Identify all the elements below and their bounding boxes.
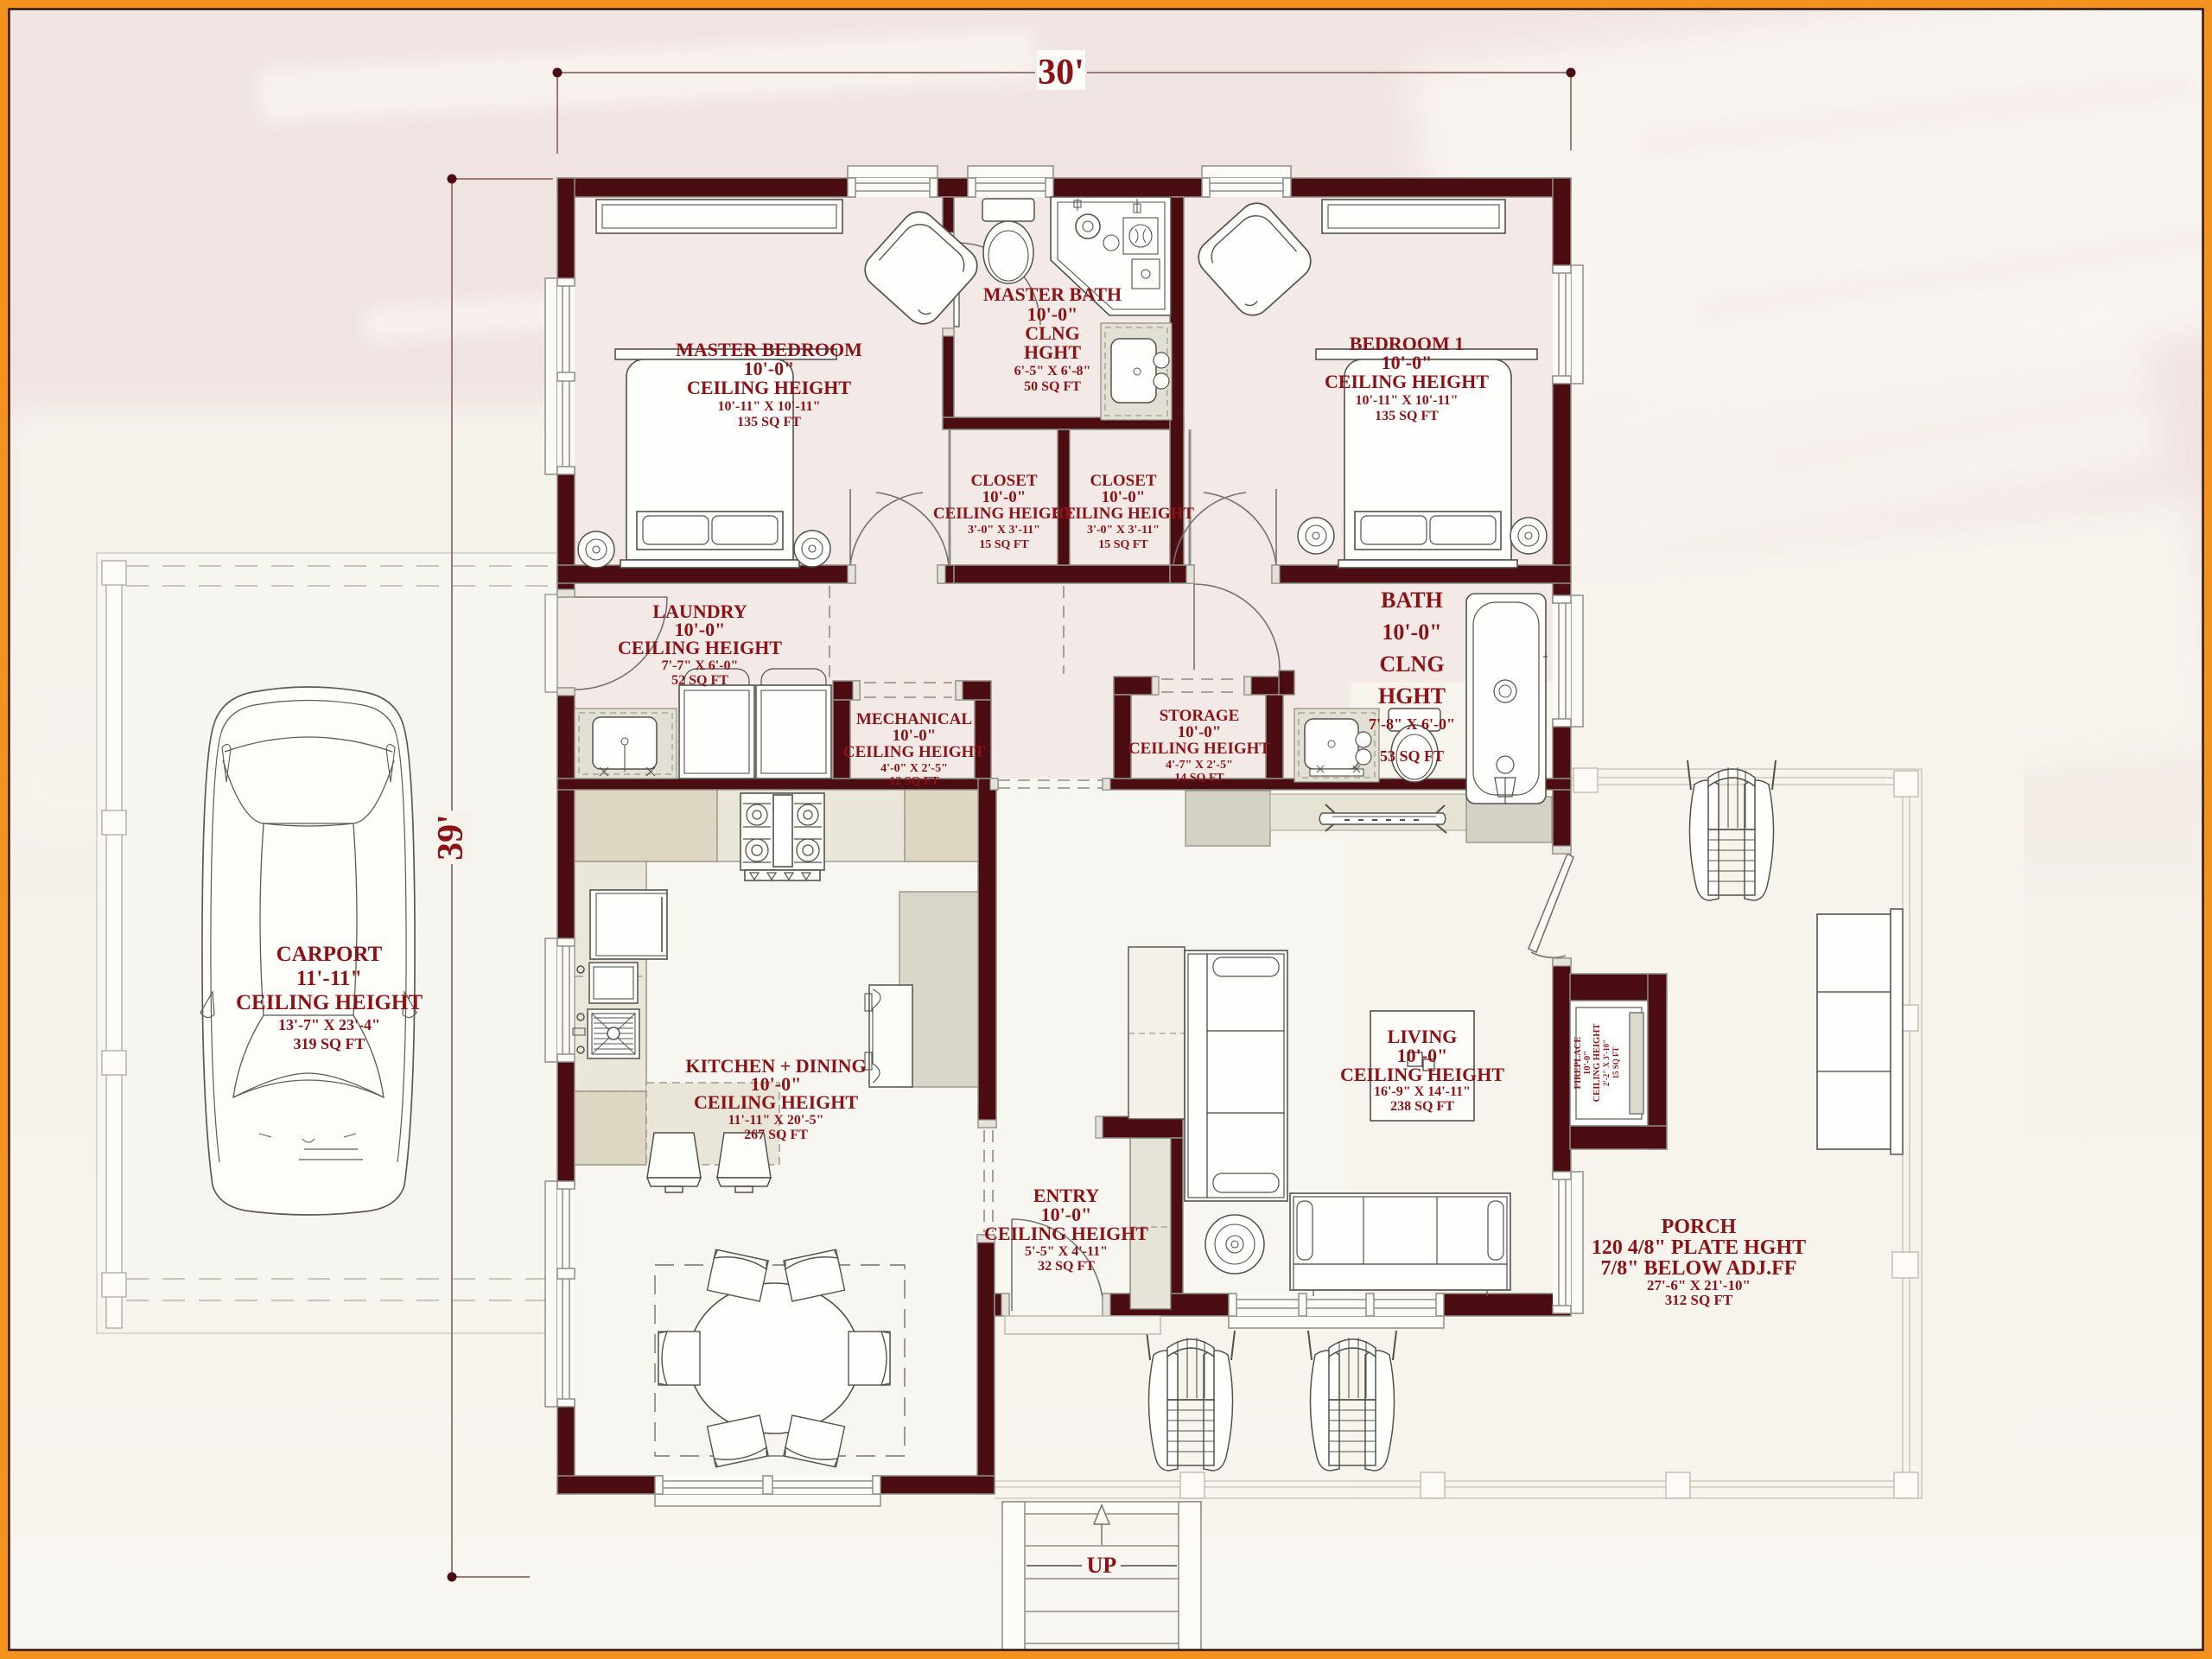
svg-text:319 SQ FT: 319 SQ FT <box>293 1035 365 1052</box>
svg-text:135 SQ FT: 135 SQ FT <box>1375 409 1439 423</box>
svg-text:HGHT: HGHT <box>1024 341 1081 363</box>
svg-text:CEILING HEIGHT: CEILING HEIGHT <box>1052 505 1195 523</box>
svg-text:10'-0": 10'-0" <box>1178 723 1222 741</box>
svg-text:12 SQ FT: 12 SQ FT <box>889 775 939 788</box>
svg-text:10'-11" X 10'-11": 10'-11" X 10'-11" <box>1355 393 1458 408</box>
svg-text:52 SQ FT: 52 SQ FT <box>671 673 728 688</box>
svg-text:13'-7" X 23'-4": 13'-7" X 23'-4" <box>278 1016 380 1033</box>
svg-text:UP: UP <box>1087 1553 1117 1578</box>
svg-text:CEILING HEIGHT: CEILING HEIGHT <box>984 1223 1148 1244</box>
svg-text:CEILING HEIGHT: CEILING HEIGHT <box>687 377 851 398</box>
svg-text:4'-0" X 2'-5": 4'-0" X 2'-5" <box>880 762 948 775</box>
svg-text:16'-9" X 14'-11": 16'-9" X 14'-11" <box>1374 1084 1471 1099</box>
svg-text:120 4/8" PLATE HGHT: 120 4/8" PLATE HGHT <box>1592 1236 1806 1259</box>
svg-text:4'-7" X 2'-5": 4'-7" X 2'-5" <box>1166 759 1233 772</box>
svg-text:6'-5" X 6'-8": 6'-5" X 6'-8" <box>1014 364 1091 378</box>
svg-text:CLOSET: CLOSET <box>970 472 1037 490</box>
svg-text:CEILING HEIGHT: CEILING HEIGHT <box>1340 1064 1504 1085</box>
svg-text:15 SQ FT: 15 SQ FT <box>1098 538 1148 551</box>
svg-text:10'-0": 10'-0" <box>1102 488 1146 506</box>
svg-text:CLNG: CLNG <box>1379 652 1444 677</box>
svg-text:HGHT: HGHT <box>1378 683 1446 709</box>
svg-text:FIREPLACE: FIREPLACE <box>1573 1037 1583 1090</box>
svg-text:CEILING HEIGHT: CEILING HEIGHT <box>843 743 986 761</box>
svg-text:CEILING HEIGHT: CEILING HEIGHT <box>236 991 423 1014</box>
svg-text:10'-0": 10'-0" <box>982 488 1027 506</box>
svg-text:15 SQ FT: 15 SQ FT <box>1611 1046 1620 1078</box>
svg-text:135 SQ FT: 135 SQ FT <box>737 415 801 429</box>
svg-text:5'-5" X 4'-11": 5'-5" X 4'-11" <box>1025 1244 1108 1259</box>
svg-text:CEILING HEIGHT: CEILING HEIGHT <box>1325 371 1489 392</box>
svg-text:3'-0" X 3'-11": 3'-0" X 3'-11" <box>1087 524 1160 537</box>
svg-text:CEILING HEIGHT: CEILING HEIGHT <box>694 1091 858 1113</box>
svg-text:MASTER BATH: MASTER BATH <box>983 283 1122 305</box>
svg-text:7'-7" X 6'-0": 7'-7" X 6'-0" <box>662 658 739 673</box>
svg-text:50 SQ FT: 50 SQ FT <box>1024 379 1081 394</box>
svg-text:11'-11" X 20'-5": 11'-11" X 20'-5" <box>728 1113 823 1128</box>
svg-text:10'-11" X 10'-11": 10'-11" X 10'-11" <box>717 399 820 414</box>
svg-text:CEILING HEIGHT: CEILING HEIGHT <box>618 637 782 658</box>
svg-text:10'-0": 10'-0" <box>893 727 937 745</box>
svg-text:14 SQ FT: 14 SQ FT <box>1174 772 1224 785</box>
svg-text:CLOSET: CLOSET <box>1090 472 1156 490</box>
svg-text:2'-2" X 3'-10": 2'-2" X 3'-10" <box>1602 1039 1611 1087</box>
svg-text:PORCH: PORCH <box>1662 1216 1737 1238</box>
svg-text:53 SQ FT: 53 SQ FT <box>1380 747 1444 765</box>
svg-text:BATH: BATH <box>1381 588 1443 613</box>
svg-text:15 SQ FT: 15 SQ FT <box>979 538 1029 551</box>
svg-text:CEILING HEIGHT: CEILING HEIGHT <box>1592 1024 1602 1103</box>
svg-text:11'-11": 11'-11" <box>296 967 362 990</box>
svg-text:CARPORT: CARPORT <box>276 943 383 966</box>
svg-text:30': 30' <box>1038 53 1084 92</box>
svg-text:STORAGE: STORAGE <box>1160 707 1240 725</box>
svg-text:39': 39' <box>431 814 471 861</box>
svg-text:312 SQ FT: 312 SQ FT <box>1665 1292 1733 1308</box>
svg-text:10'-0": 10'-0" <box>1583 1051 1592 1075</box>
svg-text:238 SQ FT: 238 SQ FT <box>1390 1099 1454 1114</box>
svg-text:267 SQ FT: 267 SQ FT <box>744 1128 808 1142</box>
svg-text:32 SQ FT: 32 SQ FT <box>1038 1259 1095 1274</box>
svg-text:3'-0" X 3'-11": 3'-0" X 3'-11" <box>968 524 1040 537</box>
svg-text:MECHANICAL: MECHANICAL <box>856 710 972 728</box>
svg-text:10'-0": 10'-0" <box>1382 620 1441 645</box>
svg-text:7'-8" X 6'-0": 7'-8" X 6'-0" <box>1369 715 1455 733</box>
svg-text:CEILING HEIGHT: CEILING HEIGHT <box>1128 740 1271 758</box>
